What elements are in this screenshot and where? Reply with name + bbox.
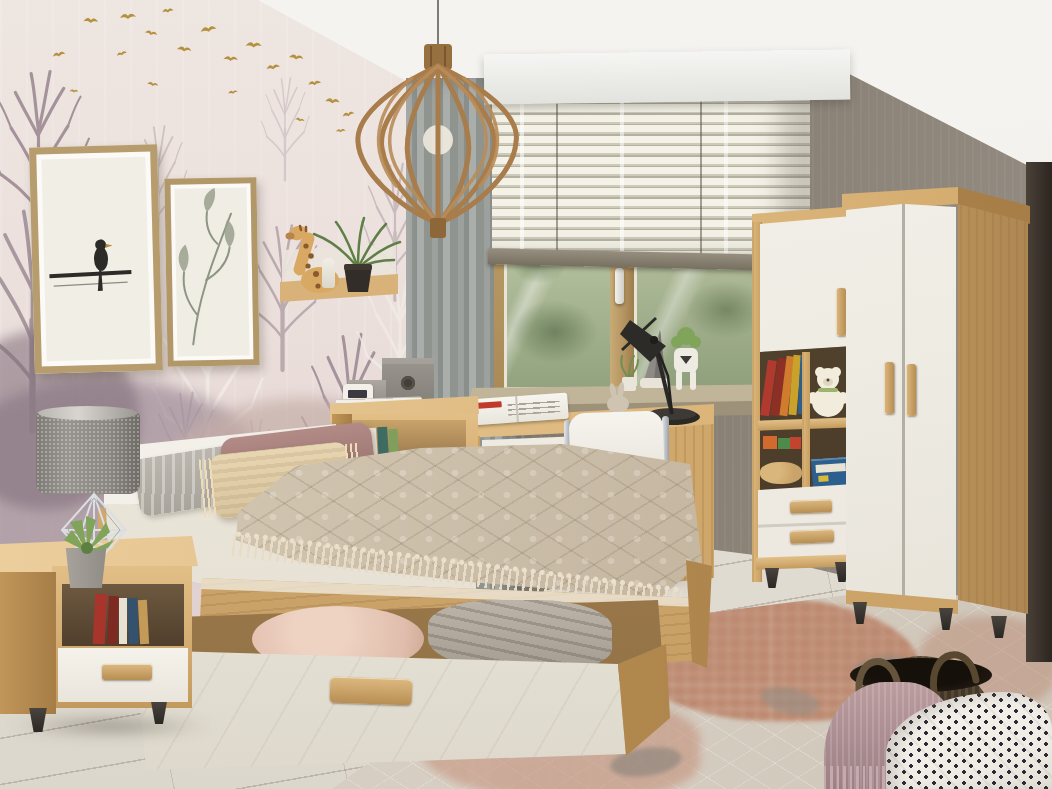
nightstand-drawer-handle (102, 664, 152, 680)
bedroom-scene (0, 0, 1052, 789)
blind-cord (556, 94, 558, 256)
nightstand-book (127, 598, 139, 644)
picture-frame-botanical (164, 177, 259, 367)
botanical-art (170, 184, 241, 349)
blind-tape (620, 94, 624, 256)
underbed-drawer-handle (330, 677, 413, 706)
toy-block (763, 436, 777, 449)
plush-dog (760, 462, 802, 484)
nightstand-side-panel (0, 572, 56, 714)
box-grommet (401, 376, 415, 390)
bookcase-drawer-handle-top (790, 499, 832, 513)
bookcase-drawer-handle-bottom (790, 529, 834, 544)
valance (484, 49, 851, 104)
nightstand-book (107, 596, 119, 644)
window-handle (615, 268, 624, 304)
clock-display (348, 390, 367, 398)
wardrobe-handle-right (906, 364, 916, 416)
game-box (811, 457, 851, 488)
toy-block (790, 437, 801, 449)
wardrobe-handle-left (884, 362, 894, 414)
pendant-lamp (352, 0, 522, 242)
bird-on-branch-art (36, 152, 141, 353)
bookcase-door-handle (836, 288, 846, 336)
wardrobe-door-seam (902, 204, 905, 600)
table-lamp-shade (36, 410, 140, 494)
picture-frame-bird (29, 144, 163, 373)
game-box-accent (818, 475, 828, 482)
wardrobe-back-gap (1026, 162, 1052, 662)
nightstand-book (119, 598, 127, 644)
teddy-bear (806, 362, 850, 418)
game-box-label (815, 463, 845, 473)
bookcase-center-divider (802, 352, 810, 492)
blind-cord (700, 94, 702, 256)
toy-block (778, 438, 790, 449)
lamp-shade-rim (38, 406, 138, 420)
blind-tape (724, 94, 728, 256)
succulent-leaves (56, 514, 118, 558)
